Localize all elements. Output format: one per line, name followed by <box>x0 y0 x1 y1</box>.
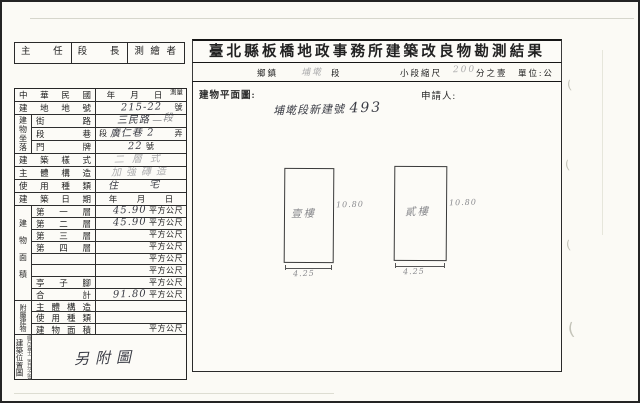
row-value: 年 月 日 <box>96 193 186 205</box>
row-value: 段 廣仁巷 2 弄 <box>96 128 186 140</box>
row-value: 二層式 <box>96 154 186 166</box>
row-label: 門牌 <box>32 141 96 153</box>
row-value <box>96 312 186 322</box>
row-label: 主體構造 <box>15 167 96 179</box>
row-label: 合計 <box>32 289 96 300</box>
section-handwritten: 埔墘 <box>301 65 323 79</box>
scan-line-top <box>30 18 634 19</box>
unit-label: 平方公尺 <box>149 265 183 277</box>
group-label-sitemap: 建築位置圖 縮尺壹千二百分之壹 <box>15 335 32 380</box>
title-area: 臺北縣板橋地政事務所建築改良物勘測結果 鄉鎮 埔墘 段 小段縮尺 200 分之壹… <box>192 39 562 81</box>
row-label: 第四層 <box>32 242 96 253</box>
row-value: 平方公尺 <box>96 265 186 276</box>
scan-line-bottom <box>14 393 334 394</box>
row-value: 三民路 二段 <box>96 115 186 127</box>
structure-handwritten: 加強磚造 <box>111 166 171 180</box>
unit-label: 平方公尺 <box>149 289 183 301</box>
floor-plan-label: 建物平面圖: <box>199 87 256 101</box>
row-label: 使用種類 <box>15 180 96 192</box>
form-row-build-date: 建築日期 年 月 日 <box>15 193 186 205</box>
floor-plan-first-floor: 壹樓 10.80 4.25 <box>281 166 353 284</box>
suffix-label: 號 <box>146 141 154 153</box>
area-rows: 第一層45.90平方公尺第二層45.90平方公尺第三層平方公尺第四層平方公尺平方… <box>32 206 186 300</box>
form-row: 第一層45.90平方公尺 <box>32 206 186 218</box>
section-area: 建物面積 第一層45.90平方公尺第二層45.90平方公尺第三層平方公尺第四層平… <box>15 206 186 301</box>
form-row: 第二層45.90平方公尺 <box>32 218 186 230</box>
section-attributes: 建築樣式 二層式 主體構造 加強磚造 使用種類 住 宅 <box>15 154 186 206</box>
form-row-street: 街路 三民路 二段 <box>32 115 186 128</box>
unit-label: 平方公尺 <box>149 323 183 335</box>
binding-hole-mark: ( <box>566 78 573 93</box>
sitemap-content: 另附圖 <box>32 335 186 380</box>
small-section-scale-label: 小段縮尺 <box>400 67 442 79</box>
width-dimension-handwritten: 4.25 <box>293 269 315 279</box>
signature-table: 主任 段長 測繪者 <box>14 42 185 64</box>
applicant-label: 申請人: <box>421 88 456 102</box>
section-sitemap: 建築位置圖 縮尺壹千二百分之壹 另附圖 <box>15 335 186 380</box>
year-label: 年 <box>109 193 118 205</box>
signature-cell-surveyor: 測繪者 <box>128 43 184 63</box>
row-label: 建築樣式 <box>15 154 96 166</box>
month-label: 月 <box>130 89 139 101</box>
floor-plan-second-floor: 貳樓 10.80 4.25 <box>391 164 463 282</box>
unit-label: 平方公尺 <box>149 217 183 229</box>
row-value <box>96 301 186 311</box>
binding-hole-mark: ( <box>565 238 572 253</box>
survey-form-table: 中華民國 年 月 日 測量 建地地號 215-22 號 <box>14 88 187 380</box>
height-dimension-handwritten: 10.80 <box>449 198 477 208</box>
row-value: 年 月 日 測量 <box>96 89 186 101</box>
floor-name-handwritten: 貳樓 <box>405 204 430 220</box>
suffix-label: 弄 <box>175 128 184 140</box>
row-value: 加強磚造 <box>96 167 186 179</box>
floor-plan-area: 建物平面圖: 申請人: 埔墘段新建號 493 壹樓 10.80 4.25 貳樓 … <box>192 81 562 372</box>
row-value: 住 宅 <box>96 180 186 192</box>
building-number-handwritten: 493 <box>349 100 382 117</box>
row-label: 主體構造 <box>32 301 96 311</box>
handwritten-value: 91.80 <box>113 288 147 301</box>
signature-cell-director: 主任 <box>15 43 72 63</box>
year-label: 年 <box>107 89 116 101</box>
scale-value-handwritten: 200 <box>453 65 476 76</box>
binding-hole-mark: ( <box>564 158 571 173</box>
group-label-location: 建物坐落 <box>15 115 32 153</box>
handwritten-value: 45.90 <box>113 217 147 230</box>
scanned-survey-form: ( ( ( ( 主任 段長 測繪者 臺北縣板橋地政事務所建築改良物勘測結果 鄉鎮… <box>0 0 640 403</box>
row-value: 45.90平方公尺 <box>96 206 186 217</box>
form-row: 平方公尺 <box>32 265 186 277</box>
row-value: 平方公尺 <box>96 230 186 241</box>
suffix-label: 號 <box>175 102 184 114</box>
row-label: 亭子腳 <box>32 277 96 288</box>
floor-name-handwritten: 壹樓 <box>291 206 316 222</box>
row-value: 91.80平方公尺 <box>96 289 186 300</box>
row-label: 街路 <box>32 115 96 127</box>
document-title: 臺北縣板橋地政事務所建築改良物勘測結果 <box>192 39 562 63</box>
group-label-annex: 附屬建物 <box>15 301 32 334</box>
group-label-area: 建物面積 <box>15 206 32 300</box>
street-small-handwritten: 二段 <box>152 115 174 124</box>
form-row-door-number: 門牌 22 號 <box>32 141 186 153</box>
unit-label: 平方公尺 <box>149 229 183 241</box>
form-row: 合計91.80平方公尺 <box>32 289 186 300</box>
height-dimension-handwritten: 10.80 <box>336 200 364 210</box>
usage-handwritten: 住 宅 <box>108 179 173 193</box>
unit-label: 平方公尺 <box>149 253 183 265</box>
day-label: 日 <box>154 89 163 101</box>
row-label <box>32 254 96 265</box>
sitemap-scale-note: 縮尺壹千二百分之壹 <box>25 335 32 380</box>
scale-row: 鄉鎮 埔墘 段 小段縮尺 200 分之壹 單位:公尺 <box>192 63 562 81</box>
row-value: 22 號 <box>96 141 186 153</box>
row-label: 建築日期 <box>15 193 96 205</box>
see-attached-figure-handwritten: 另附圖 <box>74 346 138 369</box>
signature-cell-section-chief: 段長 <box>72 43 129 63</box>
row-label: 第一層 <box>32 206 96 217</box>
row-label: 建物面積 <box>32 324 96 334</box>
section-label: 段 <box>331 67 342 79</box>
township-label: 鄉鎮 <box>257 67 278 79</box>
form-row-lane: 段巷 段 廣仁巷 2 弄 <box>32 128 186 141</box>
form-row: 主體構造 <box>32 301 186 312</box>
unit-label: 平方公尺 <box>149 277 183 289</box>
door-number-handwritten: 22 <box>128 141 143 153</box>
scale-suffix-label: 分之壹 <box>476 67 508 79</box>
row-label: 使用種類 <box>32 312 96 322</box>
plan-title-handwritten: 埔墘段新建號 493 <box>273 100 383 119</box>
survey-small-label: 測量 <box>170 89 183 97</box>
month-label: 月 <box>137 193 146 205</box>
row-label: 第二層 <box>32 218 96 229</box>
style-handwritten: 二層式 <box>114 153 168 166</box>
unit-label: 平方公尺 <box>149 205 183 217</box>
row-value: 平方公尺 <box>96 277 186 288</box>
section-pre-label: 段 <box>99 128 107 140</box>
row-label <box>32 265 96 276</box>
form-row: 平方公尺 <box>32 254 186 266</box>
row-value: 平方公尺 <box>96 242 186 253</box>
form-row-usage: 使用種類 住 宅 <box>15 180 186 193</box>
section-date-lot: 中華民國 年 月 日 測量 建地地號 215-22 號 <box>15 89 186 115</box>
row-value: 45.90平方公尺 <box>96 218 186 229</box>
row-label: 第三層 <box>32 230 96 241</box>
lane-handwritten: 廣仁巷 2 <box>110 127 155 140</box>
width-dimension-handwritten: 4.25 <box>403 267 425 277</box>
form-row: 亭子腳平方公尺 <box>32 277 186 289</box>
form-row-structure: 主體構造 加強磚造 <box>15 167 186 180</box>
row-value: 平方公尺 <box>96 324 186 334</box>
scan-line-right <box>602 50 603 235</box>
form-row: 第三層平方公尺 <box>32 230 186 242</box>
section-location: 建物坐落 街路 三民路 二段 段巷 段 廣仁巷 2 弄 <box>15 115 186 154</box>
row-label: 段巷 <box>32 128 96 140</box>
row-label: 建地地號 <box>15 102 96 114</box>
form-row: 建物面積平方公尺 <box>32 324 186 334</box>
day-label: 日 <box>165 193 174 205</box>
row-value: 平方公尺 <box>96 254 186 265</box>
binding-hole-mark: ( <box>567 320 576 341</box>
street-handwritten: 三民路 <box>117 115 150 128</box>
section-annex: 附屬建物 主體構造使用種類建物面積平方公尺 <box>15 301 186 335</box>
annex-rows: 主體構造使用種類建物面積平方公尺 <box>32 301 186 334</box>
form-row: 第四層平方公尺 <box>32 242 186 254</box>
unit-label: 平方公尺 <box>149 241 183 253</box>
form-row-style: 建築樣式 二層式 <box>15 154 186 167</box>
form-row-survey-date: 中華民國 年 月 日 測量 <box>15 89 186 102</box>
row-label: 中華民國 <box>15 89 96 101</box>
